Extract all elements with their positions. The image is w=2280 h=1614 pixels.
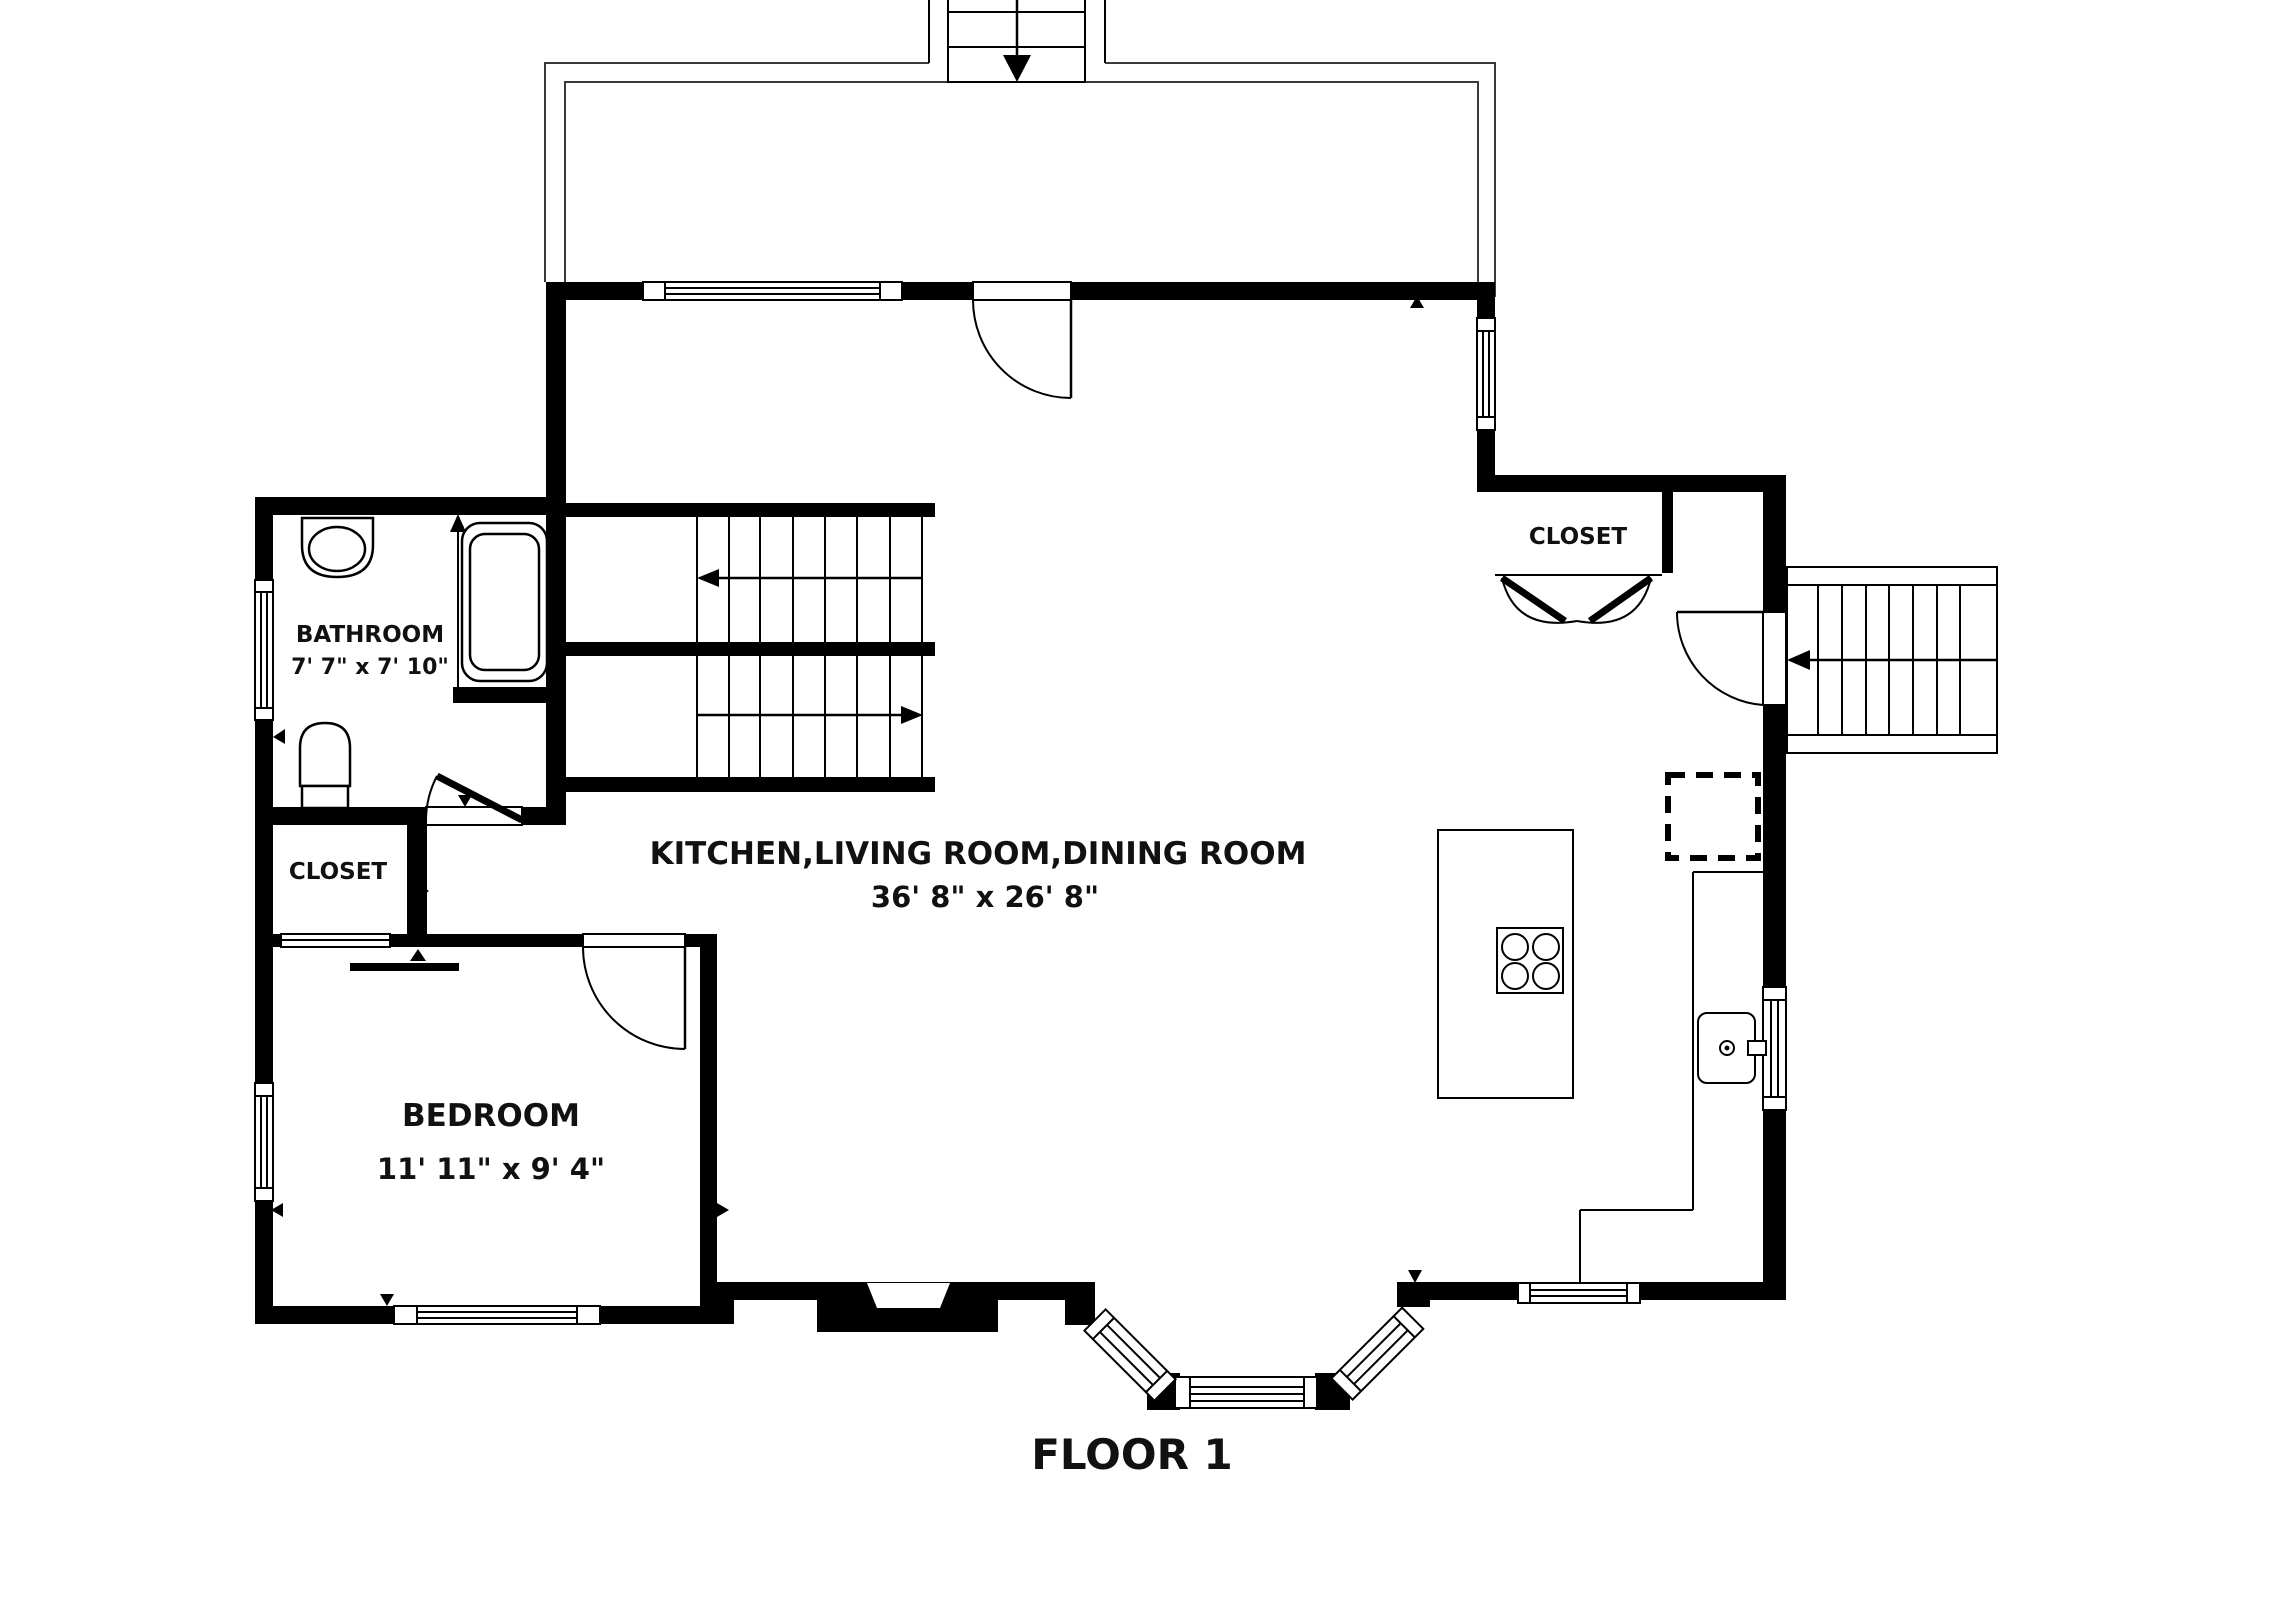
toilet-icon [300,723,350,808]
floor-plan-svg: BATHROOM 7' 7" x 7' 10" CLOSET KITCHEN,L… [0,0,2280,1614]
marker-bedroom-bottom-icon [380,1294,394,1306]
dashed-appliance-icon [1668,775,1758,858]
deck-stairs-down-icon [929,0,1105,82]
marker-bathroom-door-icon [458,795,472,807]
floor-plan-canvas: BATHROOM 7' 7" x 7' 10" CLOSET KITCHEN,L… [0,0,2280,1614]
kitchen-fixtures [1438,775,1766,1282]
exterior-stairs-icon [1787,567,1997,753]
kitchen-sink-icon [1698,1013,1766,1083]
door-bedroom [583,934,685,1049]
wall-bottom-a [717,1282,817,1300]
wall-stair-bottom [566,777,935,792]
closet2-label: CLOSET [1529,524,1628,550]
window-bathroom-left [255,580,273,720]
wall-bottom-d [1627,1282,1786,1300]
door-closet2-bifold [1495,575,1662,623]
cooktop-4-burner-icon [1497,928,1563,993]
bay-corner-right [1397,1282,1430,1307]
wall-right-lower [1763,1110,1786,1300]
bedroom-dims: 11' 11" x 9' 4" [377,1152,605,1186]
marker-bedroom-right-icon [717,1203,729,1217]
wall-bedroom-right [700,934,717,1306]
window-bedroom-left [255,1083,273,1201]
door-right-entry [1677,612,1786,705]
stair-arrow-right-icon [901,706,923,724]
wall-right-mid [1763,705,1786,987]
window-top-wall [643,282,902,300]
bay-corner-left [1065,1282,1095,1325]
wall-bottom-c [1430,1282,1530,1300]
wall-stair-mid [566,642,935,656]
wall-left-upper [546,282,566,825]
wall-stair-top [566,503,935,517]
door-closet1-slider [350,949,459,971]
bathroom-label: BATHROOM [296,622,444,648]
corner-sink-icon [302,518,373,577]
deck-outline [545,63,1495,297]
marker-bathroom-left-icon [273,729,285,744]
window-bay-bottom [1175,1377,1317,1408]
window-bedroom-bottom [394,1306,600,1324]
wall-closet2-right [1662,492,1673,573]
window-bay-right-angled [1331,1308,1423,1400]
wall-tub-stub [453,687,550,703]
marker-bay-right-icon [1408,1270,1422,1283]
entry-step-notch [867,1283,950,1308]
window-topright-wall [1477,318,1495,430]
door-top-entry [973,282,1071,398]
wall-closet2-top [1477,475,1786,492]
window-bottom-right [1518,1283,1640,1303]
wall-right-upper [1763,475,1786,612]
kitchen-dims: 36' 8" x 26' 8" [871,880,1099,914]
bedroom-label: BEDROOM [402,1098,580,1134]
stair-arrow-left-icon [697,569,719,587]
stair-flight-upper [697,517,922,642]
bathtub-icon [462,523,547,681]
wall-bathroom-top [255,497,566,515]
door-bathroom [426,776,522,825]
closet1-label: CLOSET [289,859,388,885]
closet1-slider-window [281,934,390,947]
kitchen-label: KITCHEN,LIVING ROOM,DINING ROOM [650,836,1307,872]
wall-topright-vert-a [1477,297,1495,318]
bathroom-dims: 7' 7" x 7' 10" [291,655,449,680]
floor-title: FLOOR 1 [1031,1430,1233,1479]
window-bay-left-angled [1084,1309,1175,1400]
wall-bedroom-left [255,825,273,1324]
stair-flight-lower [697,656,923,777]
